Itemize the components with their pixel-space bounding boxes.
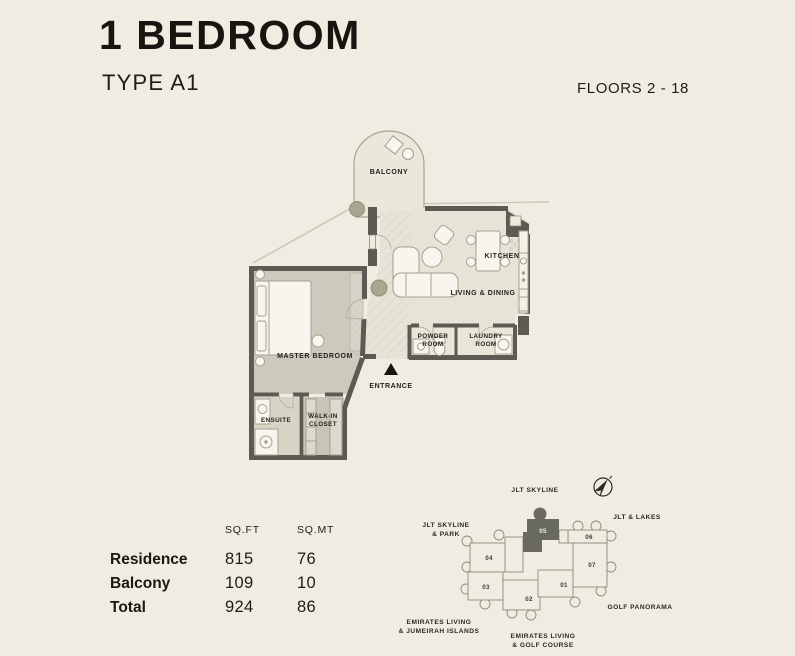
area-table-header: SQ.FT SQ.MT xyxy=(110,524,377,550)
unit-02-cell xyxy=(503,580,540,610)
keyplan-label-jlt-skyline-park: JLT SKYLINE& PARK xyxy=(422,522,469,538)
master-bedroom-label: MASTER BEDROOM xyxy=(277,353,353,360)
row-label: Residence xyxy=(110,551,225,569)
keyplan-unit-02: 02 xyxy=(525,596,533,603)
keyplan-unit-04: 04 xyxy=(485,555,493,562)
keyplan-unit-01: 01 xyxy=(560,582,568,589)
page-title: 1 BEDROOM xyxy=(99,12,361,59)
keyplan-label-jlt-skyline: JLT SKYLINE xyxy=(511,487,558,494)
floors-range-label: FLOORS 2 - 18 xyxy=(577,80,689,97)
row-sqft: 815 xyxy=(225,550,297,569)
area-table: SQ.FT SQ.MT Residence 815 76 Balcony 109… xyxy=(110,524,377,622)
kitchen-counter xyxy=(519,231,528,313)
floor-plan: BALCONY KITCHEN LIVING & DINING POWDERRO… xyxy=(243,113,549,475)
keyplan-label-emirates-golf: EMIRATES LIVING& GOLF COURSE xyxy=(511,633,576,649)
kitchen-label: KITCHEN xyxy=(485,253,520,260)
key-plan: 04 03 02 01 07 06 05 JLT SKYLINE JLT & L… xyxy=(395,475,695,655)
keyplan-label-golf-panorama: GOLF PANORAMA xyxy=(608,604,673,611)
entrance-arrow-icon xyxy=(384,363,398,375)
keyplan-unit-06: 06 xyxy=(585,534,593,541)
walk-in-closet-label: WALK-INCLOSET xyxy=(308,413,338,428)
keyplan-label-emirates-jumeirah: EMIRATES LIVING& JUMEIRAH ISLANDS xyxy=(399,619,480,635)
floor-plan-page: 1 BEDROOM TYPE A1 FLOORS 2 - 18 xyxy=(0,0,795,656)
planter-icon xyxy=(350,202,365,217)
row-sqmt: 10 xyxy=(297,574,377,593)
row-sqft: 924 xyxy=(225,598,297,617)
corridor-cell xyxy=(505,537,523,572)
unit-01-cell xyxy=(538,570,573,597)
corridor-cell xyxy=(559,530,568,543)
row-sqmt: 76 xyxy=(297,550,377,569)
balcony-label: BALCONY xyxy=(370,169,408,176)
unit-type-subtitle: TYPE A1 xyxy=(102,70,200,96)
sqmt-header: SQ.MT xyxy=(297,524,377,536)
balcony-chair xyxy=(403,149,414,160)
compass-icon xyxy=(594,476,612,496)
row-label: Balcony xyxy=(110,575,225,593)
entrance-label: ENTRANCE xyxy=(369,383,412,390)
keyplan-unit-03: 03 xyxy=(482,584,490,591)
table-row: Balcony 109 10 xyxy=(110,574,377,598)
keyplan-unit-05: 05 xyxy=(539,528,547,535)
sqft-header: SQ.FT xyxy=(225,524,297,536)
planter-icon xyxy=(371,280,387,296)
side-table xyxy=(312,335,324,347)
row-sqft: 109 xyxy=(225,574,297,593)
shaft-niche xyxy=(510,216,521,226)
row-sqmt: 86 xyxy=(297,598,377,617)
row-label: Total xyxy=(110,599,225,617)
table-row: Total 924 86 xyxy=(110,598,377,622)
keyplan-unit-07: 07 xyxy=(588,562,596,569)
ensuite-label: ENSUITE xyxy=(261,417,291,424)
keyplan-label-jlt-lakes: JLT & LAKES xyxy=(613,514,661,521)
living-dining-label: LIVING & DINING xyxy=(450,290,515,297)
table-row: Residence 815 76 xyxy=(110,550,377,574)
coffee-table xyxy=(422,247,442,267)
